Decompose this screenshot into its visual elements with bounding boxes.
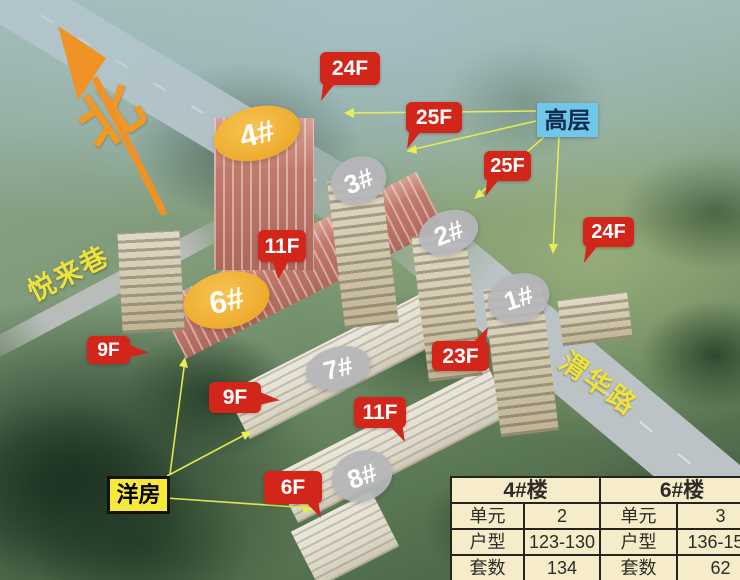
units-info-table: 4#楼 6#楼 单元 2 单元 3 户型 123-130 户型 136-155 … bbox=[450, 476, 740, 580]
floor-badge-24f-building4: 24F bbox=[320, 52, 380, 85]
table-cell-label: 户型 bbox=[452, 530, 523, 554]
table-cell-value: 134 bbox=[525, 556, 599, 580]
floor-badge-11f-building6: 11F bbox=[258, 230, 306, 262]
floor-badge-11f-building8: 11F bbox=[354, 397, 406, 428]
building-label-8-text: 8# bbox=[344, 459, 380, 493]
tag-highrise-text: 高层 bbox=[545, 109, 591, 132]
floor-badge-text: 6F bbox=[281, 477, 306, 498]
building-label-1-text: 1# bbox=[501, 281, 537, 315]
floor-badge-text: 11F bbox=[362, 402, 397, 423]
table-cell-label: 套数 bbox=[601, 556, 676, 580]
floor-badge-text: 24F bbox=[591, 222, 625, 242]
floor-badge-25f-building2: 25F bbox=[484, 151, 531, 181]
floor-badge-text: 25F bbox=[416, 107, 452, 128]
table-cell-value: 123-130 bbox=[525, 530, 599, 554]
building-label-2-text: 2# bbox=[430, 215, 466, 249]
floor-badge-9f-building7: 9F bbox=[209, 382, 261, 413]
tag-highrise: 高层 bbox=[537, 103, 598, 137]
floor-badge-23f-building1: 23F bbox=[432, 341, 489, 371]
floor-badge-9f-west: 9F bbox=[87, 336, 130, 364]
table-cell-value: 136-155 bbox=[678, 530, 740, 554]
building-label-7-text: 7# bbox=[321, 352, 355, 384]
table-header-building6: 6#楼 bbox=[601, 478, 740, 502]
north-arrow bbox=[58, 26, 163, 212]
floor-badge-6f-building8: 6F bbox=[264, 471, 322, 504]
site-plan-image: 北 悦来巷 渭华路 4# 6# 3# 2# 1# 7# 8# 24F 25F 2… bbox=[0, 0, 740, 580]
tag-garden-house: 洋房 bbox=[107, 476, 170, 514]
building-label-6-text: 6# bbox=[206, 281, 246, 318]
floor-badge-25f-building3: 25F bbox=[406, 102, 462, 133]
table-cell-label: 户型 bbox=[601, 530, 676, 554]
floor-badge-text: 9F bbox=[223, 387, 248, 408]
floor-badge-24f-building1: 24F bbox=[583, 217, 634, 247]
floor-badge-text: 25F bbox=[490, 156, 524, 176]
floor-badge-text: 11F bbox=[264, 236, 299, 257]
table-cell-value: 2 bbox=[525, 504, 599, 528]
table-cell-value: 3 bbox=[678, 504, 740, 528]
floor-badge-text: 24F bbox=[332, 58, 368, 79]
floor-badge-text: 9F bbox=[97, 341, 119, 360]
table-header-building4: 4#楼 bbox=[452, 478, 599, 502]
table-cell-label: 单元 bbox=[452, 504, 523, 528]
table-cell-value: 62 bbox=[678, 556, 740, 580]
table-cell-label: 单元 bbox=[601, 504, 676, 528]
building-label-4-text: 4# bbox=[237, 114, 278, 152]
tag-garden-text: 洋房 bbox=[116, 484, 160, 506]
table-cell-label: 套数 bbox=[452, 556, 523, 580]
building-label-3-text: 3# bbox=[340, 163, 377, 198]
floor-badge-text: 23F bbox=[442, 346, 478, 367]
